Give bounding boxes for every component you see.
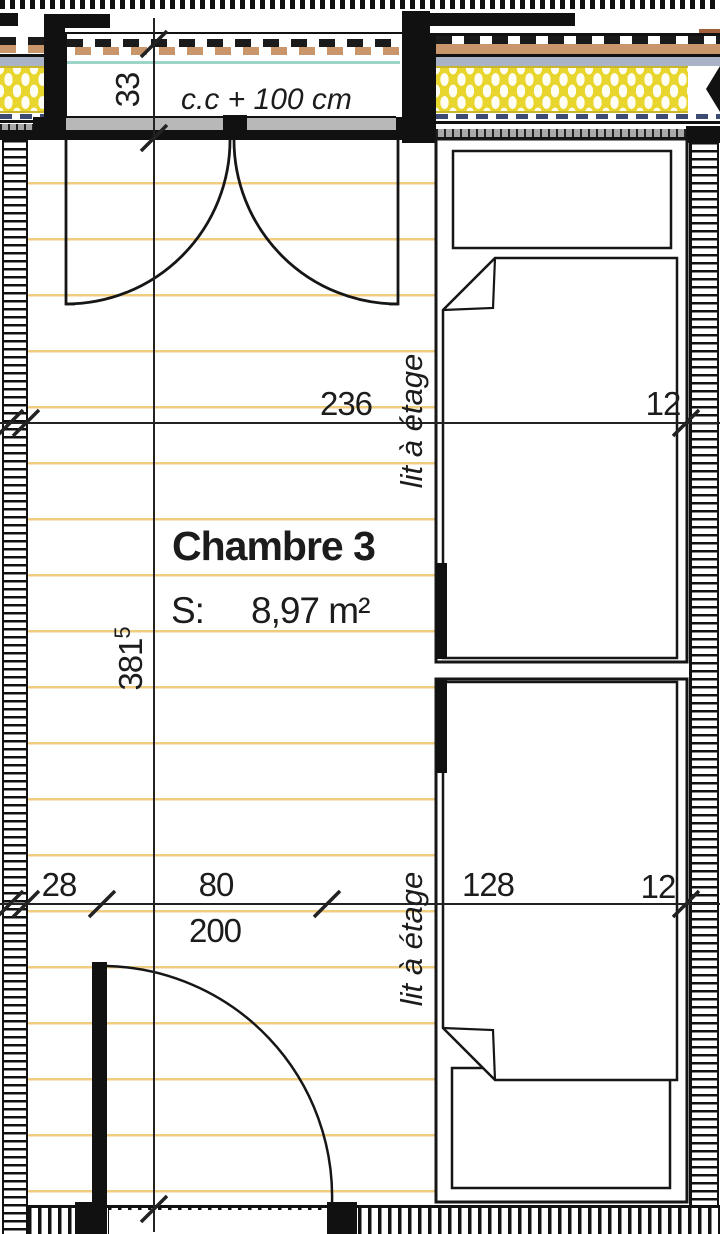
french-window-swing [66,140,398,304]
bunk-bed-upper-label: lit à étage [394,354,430,488]
door [75,962,357,1234]
dim-door-width: 80 [199,866,234,904]
bed-pillow [452,1068,670,1188]
bed-ladder-bar [436,680,447,773]
surface-value: 8,97 m² [251,590,369,632]
dim-top-wall-thickness: 33 [109,73,147,108]
dim-right-wall-top: 12 [646,385,681,423]
dim-bed-zone: 128 [462,866,514,904]
surface-label: S: [171,590,204,632]
door-swing-arc [107,966,332,1204]
dim-room-length-exponent: 5 [110,627,135,638]
insulation-end-wedge [706,66,720,112]
bed-blanket [443,258,677,658]
window-sill-label: c.c + 100 cm [181,83,352,117]
room-title: Chambre 3 [172,523,375,570]
door-stop-left [75,1202,107,1234]
window-swing-arc-right [234,140,398,304]
dim-right-wall-bottom: 12 [641,868,676,906]
floor-plan: Chambre 3 S: 8,97 m² c.c + 100 cm 236 12… [0,0,720,1234]
dim-room-length-value: 381 [112,639,149,691]
bunk-bed-lower [436,679,687,1202]
dim-wall-to-door: 28 [42,866,77,904]
dim-room-length: 3815 [110,627,150,690]
bed-ladder-bar [436,563,447,659]
window-leaf-left [66,140,75,304]
window-swing-arc-left [66,140,230,304]
bunk-bed-lower-label: lit à étage [394,872,430,1006]
dim-door-height: 200 [189,912,241,950]
bed-pillow [453,151,671,248]
window-leaf-right [389,140,398,304]
dim-room-width: 236 [320,385,372,423]
door-leaf [92,962,107,1204]
door-stop-right [327,1202,357,1234]
